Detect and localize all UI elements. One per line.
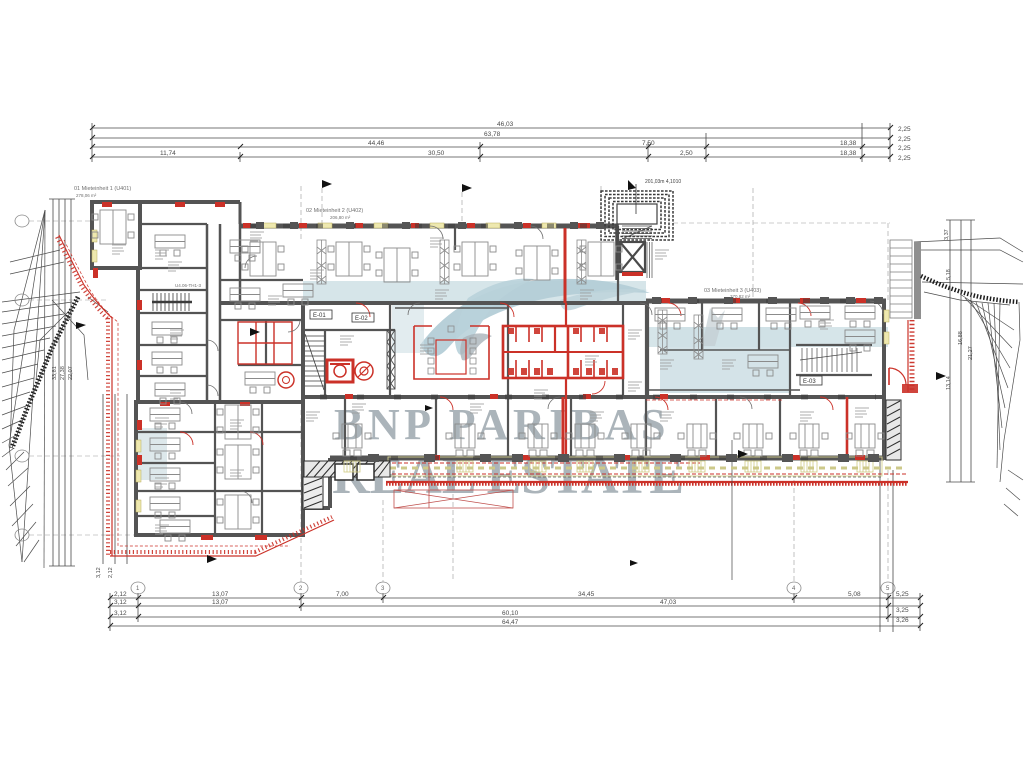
svg-text:33,81: 33,81 — [52, 366, 58, 380]
svg-text:63,78: 63,78 — [484, 131, 501, 138]
svg-text:22,07: 22,07 — [68, 366, 74, 380]
svg-text:47,03: 47,03 — [660, 599, 677, 606]
svg-text:01 Mieteinheit 1 (U401): 01 Mieteinheit 1 (U401) — [74, 186, 131, 192]
svg-text:3,25: 3,25 — [896, 607, 909, 614]
svg-text:34,45: 34,45 — [578, 591, 595, 598]
svg-text:60,10: 60,10 — [502, 610, 519, 617]
svg-text:64,47: 64,47 — [502, 619, 519, 626]
svg-text:U4.06-TH1-3: U4.06-TH1-3 — [175, 283, 202, 288]
svg-text:18,38: 18,38 — [840, 140, 857, 147]
svg-text:7,00: 7,00 — [336, 591, 349, 598]
svg-text:E-01: E-01 — [313, 313, 326, 319]
svg-text:16,88: 16,88 — [958, 331, 964, 345]
svg-text:E-03: E-03 — [803, 379, 816, 385]
svg-text:02 Mieteinheit 2 (U402): 02 Mieteinheit 2 (U402) — [306, 208, 363, 214]
svg-text:5,25: 5,25 — [896, 591, 909, 598]
svg-text:2,50: 2,50 — [680, 150, 693, 157]
svg-text:30,50: 30,50 — [428, 150, 445, 157]
svg-text:370,82 m²: 370,82 m² — [730, 294, 751, 299]
svg-text:3,12: 3,12 — [114, 610, 127, 617]
svg-text:18,38: 18,38 — [840, 150, 857, 157]
svg-text:2,25: 2,25 — [898, 155, 911, 162]
svg-text:E-02: E-02 — [355, 316, 368, 322]
svg-text:7,50: 7,50 — [642, 140, 655, 147]
svg-text:2,25: 2,25 — [898, 145, 911, 152]
svg-text:2,25: 2,25 — [898, 126, 911, 133]
svg-text:3,26: 3,26 — [896, 617, 909, 624]
svg-text:13,07: 13,07 — [212, 599, 229, 606]
svg-text:206,80 m²: 206,80 m² — [330, 215, 351, 220]
svg-text:46,03: 46,03 — [497, 121, 514, 128]
svg-text:2,25: 2,25 — [898, 136, 911, 143]
svg-text:13,14: 13,14 — [946, 376, 952, 390]
svg-text:5,18: 5,18 — [946, 269, 952, 280]
svg-text:44,46: 44,46 — [368, 140, 385, 147]
svg-text:278,06 m²: 278,06 m² — [76, 193, 97, 198]
svg-text:3,12: 3,12 — [96, 567, 102, 578]
svg-text:3,12: 3,12 — [114, 599, 127, 606]
svg-text:2,12: 2,12 — [108, 567, 114, 578]
svg-text:21,27: 21,27 — [968, 346, 974, 360]
svg-text:BNP PARIBAS: BNP PARIBAS — [334, 400, 670, 449]
svg-text:2,12: 2,12 — [114, 591, 127, 598]
svg-text:201,03m 4,1010: 201,03m 4,1010 — [645, 179, 681, 185]
svg-text:3,37: 3,37 — [944, 229, 950, 240]
svg-text:11,74: 11,74 — [160, 150, 176, 157]
svg-text:13,07: 13,07 — [212, 591, 229, 598]
svg-text:27,38: 27,38 — [60, 366, 66, 380]
svg-text:5,08: 5,08 — [848, 591, 861, 598]
